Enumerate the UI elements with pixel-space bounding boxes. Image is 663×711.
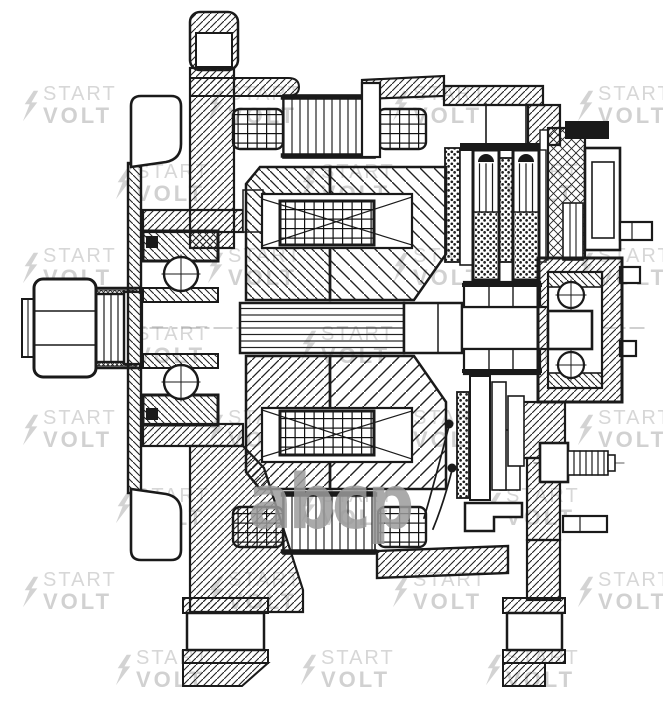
alternator-drawing-stage: START VOLT START VOLT START VOLT START V…: [0, 0, 663, 711]
rear-bearing: [538, 258, 622, 402]
connector-tab: [565, 121, 609, 139]
pulley-flange-bottom: [131, 489, 181, 560]
abcp-watermark: abcp: [248, 464, 411, 540]
alternator-cross-section-drawing: [0, 0, 663, 711]
lock-washer-stack: [96, 294, 124, 362]
shaft-nut: [34, 279, 96, 377]
brush-left: [473, 150, 499, 280]
pulley-web: [128, 163, 141, 493]
pulley-flange-top: [131, 96, 181, 167]
brush-right: [513, 150, 539, 280]
b-plus-terminal: [534, 443, 626, 482]
